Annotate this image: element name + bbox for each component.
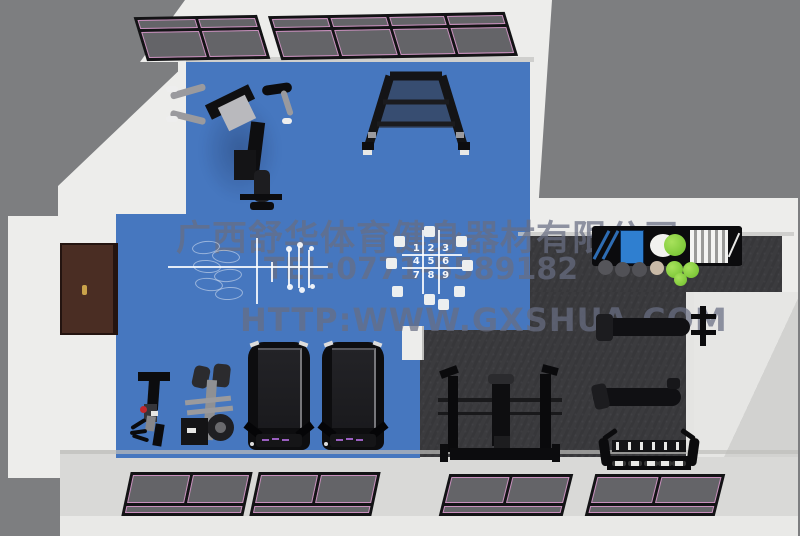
- dumbbell: [644, 461, 658, 466]
- rack-post: [448, 376, 458, 452]
- grid-line: [402, 267, 462, 269]
- rack-foot: [552, 444, 560, 462]
- window-pane: [334, 29, 397, 56]
- window-pane: [655, 477, 722, 503]
- dumbbell-rack: [600, 430, 698, 472]
- leg-press-rack: [360, 66, 472, 162]
- floor-tick: [271, 262, 273, 282]
- bench-upright: [700, 306, 706, 346]
- green-exercise-ball: [664, 234, 686, 256]
- window-pane: [506, 477, 570, 503]
- treadmill-1: [248, 342, 310, 454]
- grid-digit: 8: [424, 269, 439, 282]
- window-pane: [198, 18, 258, 28]
- dumbbell: [612, 461, 626, 466]
- floor-plan-render: 广西舒华体育健身器材有限公司 TEL:0771-5589182 HTTP:WWW…: [0, 0, 800, 536]
- window-pane: [589, 506, 715, 513]
- window-pane: [255, 475, 317, 503]
- floor-square-marker: [462, 260, 473, 271]
- window-row: [589, 506, 715, 513]
- floor-square-marker: [392, 286, 403, 297]
- bottom-window-group-4: [585, 474, 725, 516]
- counter-blue-panel: [620, 230, 644, 264]
- window-pane: [187, 475, 249, 503]
- machine-foot: [152, 423, 164, 446]
- stool: [598, 260, 613, 275]
- green-exercise-ball: [674, 273, 687, 286]
- floor-marker-dot: [310, 284, 315, 289]
- bench-head: [591, 383, 611, 411]
- squat-rack: [438, 366, 562, 470]
- console-glyph: [282, 439, 289, 441]
- window-pane: [127, 475, 189, 503]
- window-row: [253, 506, 370, 513]
- bottom-window-group-1: [121, 472, 252, 516]
- bottom-window-group-3: [439, 474, 573, 516]
- floor-tick: [288, 250, 290, 286]
- floor-number-grid: 1 2 3 4 5 6 7 8 9: [404, 238, 460, 294]
- floor-marker-dot: [286, 246, 292, 252]
- entry-door: [60, 243, 118, 335]
- floor-tick: [298, 246, 300, 288]
- floor-marker-dot: [299, 287, 305, 293]
- grid-line: [422, 230, 424, 294]
- skylight-window-group-2: [268, 12, 518, 60]
- flat-bench-1: [596, 306, 718, 348]
- machine-label: [187, 428, 196, 433]
- dumbbell-handle: [628, 442, 631, 450]
- window-pane: [138, 19, 198, 29]
- dumbbell: [628, 461, 642, 466]
- leg-curl-machine: [130, 368, 178, 454]
- rack-foot: [440, 444, 448, 462]
- window-row: [445, 477, 569, 503]
- console-glyph: [356, 439, 363, 441]
- handle-grip: [166, 86, 178, 92]
- bench-foot: [250, 202, 274, 210]
- multi-station-machine: [170, 74, 296, 212]
- console-glyph: [346, 438, 353, 440]
- plate-stack: [494, 436, 510, 448]
- console-dot: [250, 442, 254, 446]
- wheel-hub: [215, 422, 226, 433]
- window-pane: [443, 506, 563, 513]
- dumbbell: [658, 461, 672, 466]
- machine-roller: [261, 82, 292, 96]
- cable-machine: [181, 354, 241, 454]
- window-pane: [125, 506, 242, 513]
- dumbbell-handle: [616, 442, 619, 450]
- stool-tan: [650, 261, 664, 275]
- floor-square-marker: [424, 226, 435, 237]
- dumbbell-handle: [676, 442, 679, 450]
- grid-line: [402, 254, 462, 256]
- console-glyph: [336, 439, 343, 441]
- skylight-window-group-1: [134, 15, 271, 61]
- bottom-wall-edge: [60, 516, 798, 536]
- window-pane: [591, 477, 658, 503]
- console-glyph: [272, 438, 279, 440]
- dumbbell-handle: [664, 442, 667, 450]
- dumbbell-handle: [640, 442, 643, 450]
- window-pane: [141, 31, 206, 58]
- floor-square-marker: [394, 236, 405, 247]
- window-pane: [392, 28, 455, 55]
- window-row: [255, 475, 377, 503]
- window-pane: [330, 17, 388, 27]
- window-pane: [389, 16, 447, 26]
- flat-bench-2: [593, 376, 691, 414]
- floor-square-marker: [454, 286, 465, 297]
- grid-digits: 1 2 3 4 5 6 7 8 9: [409, 242, 453, 282]
- window-row: [591, 477, 721, 503]
- stool: [632, 262, 647, 277]
- bottom-window-group-2: [249, 472, 380, 516]
- window-pane: [272, 18, 330, 28]
- window-row: [275, 27, 514, 57]
- floor-marker-dot: [309, 246, 314, 251]
- floor-square-marker: [438, 299, 449, 310]
- window-pane: [447, 15, 505, 25]
- window-pane: [275, 30, 338, 57]
- floor-court-centerline: [256, 238, 258, 304]
- grid-line: [438, 230, 440, 294]
- floor-tick: [308, 250, 310, 288]
- console-glyph: [262, 439, 269, 441]
- machine-prong: [132, 433, 149, 442]
- window-pane: [445, 477, 509, 503]
- stool: [615, 262, 630, 277]
- treadmill-2: [322, 342, 384, 454]
- bench-crossbar: [691, 314, 716, 319]
- bench-crossbar: [240, 194, 282, 200]
- window-row: [138, 18, 258, 29]
- window-row: [127, 475, 249, 503]
- window-row: [125, 506, 242, 513]
- treadmill-belt: [258, 348, 302, 428]
- window-pane: [201, 30, 266, 57]
- door-handle: [82, 285, 87, 295]
- floor-court-lines: [168, 266, 328, 268]
- counter-rack-slats: [690, 230, 728, 263]
- weight-stack: [234, 150, 256, 180]
- floor-square-marker: [456, 236, 467, 247]
- treadmill-belt: [332, 348, 376, 428]
- floor-square-marker: [386, 258, 397, 269]
- floor-square-marker: [424, 294, 435, 305]
- window-row: [443, 506, 563, 513]
- grid-digit: 9: [438, 269, 453, 282]
- rack-pad: [488, 374, 514, 384]
- machine-label: [151, 411, 158, 416]
- handle-grip: [282, 118, 292, 124]
- floor-marker-dot: [287, 284, 293, 290]
- dumbbell-handle: [652, 442, 655, 450]
- red-accent: [140, 406, 147, 413]
- window-pane: [315, 475, 377, 503]
- window-row: [272, 15, 506, 28]
- window-row: [141, 30, 266, 58]
- bench-head: [596, 314, 613, 341]
- window-pane: [253, 506, 370, 513]
- machine-arm: [280, 90, 294, 117]
- console-dot: [324, 442, 328, 446]
- rack-base: [450, 448, 552, 460]
- rack-post: [540, 374, 551, 456]
- handle-grip: [166, 116, 178, 122]
- bench-crossbar: [691, 330, 716, 335]
- dumbbell: [672, 461, 686, 466]
- rack-top-rail: [612, 440, 686, 452]
- window-pane: [451, 27, 514, 54]
- rack-frame: [360, 66, 472, 162]
- bench-nub: [667, 378, 680, 389]
- floor-marker-dot: [297, 242, 303, 248]
